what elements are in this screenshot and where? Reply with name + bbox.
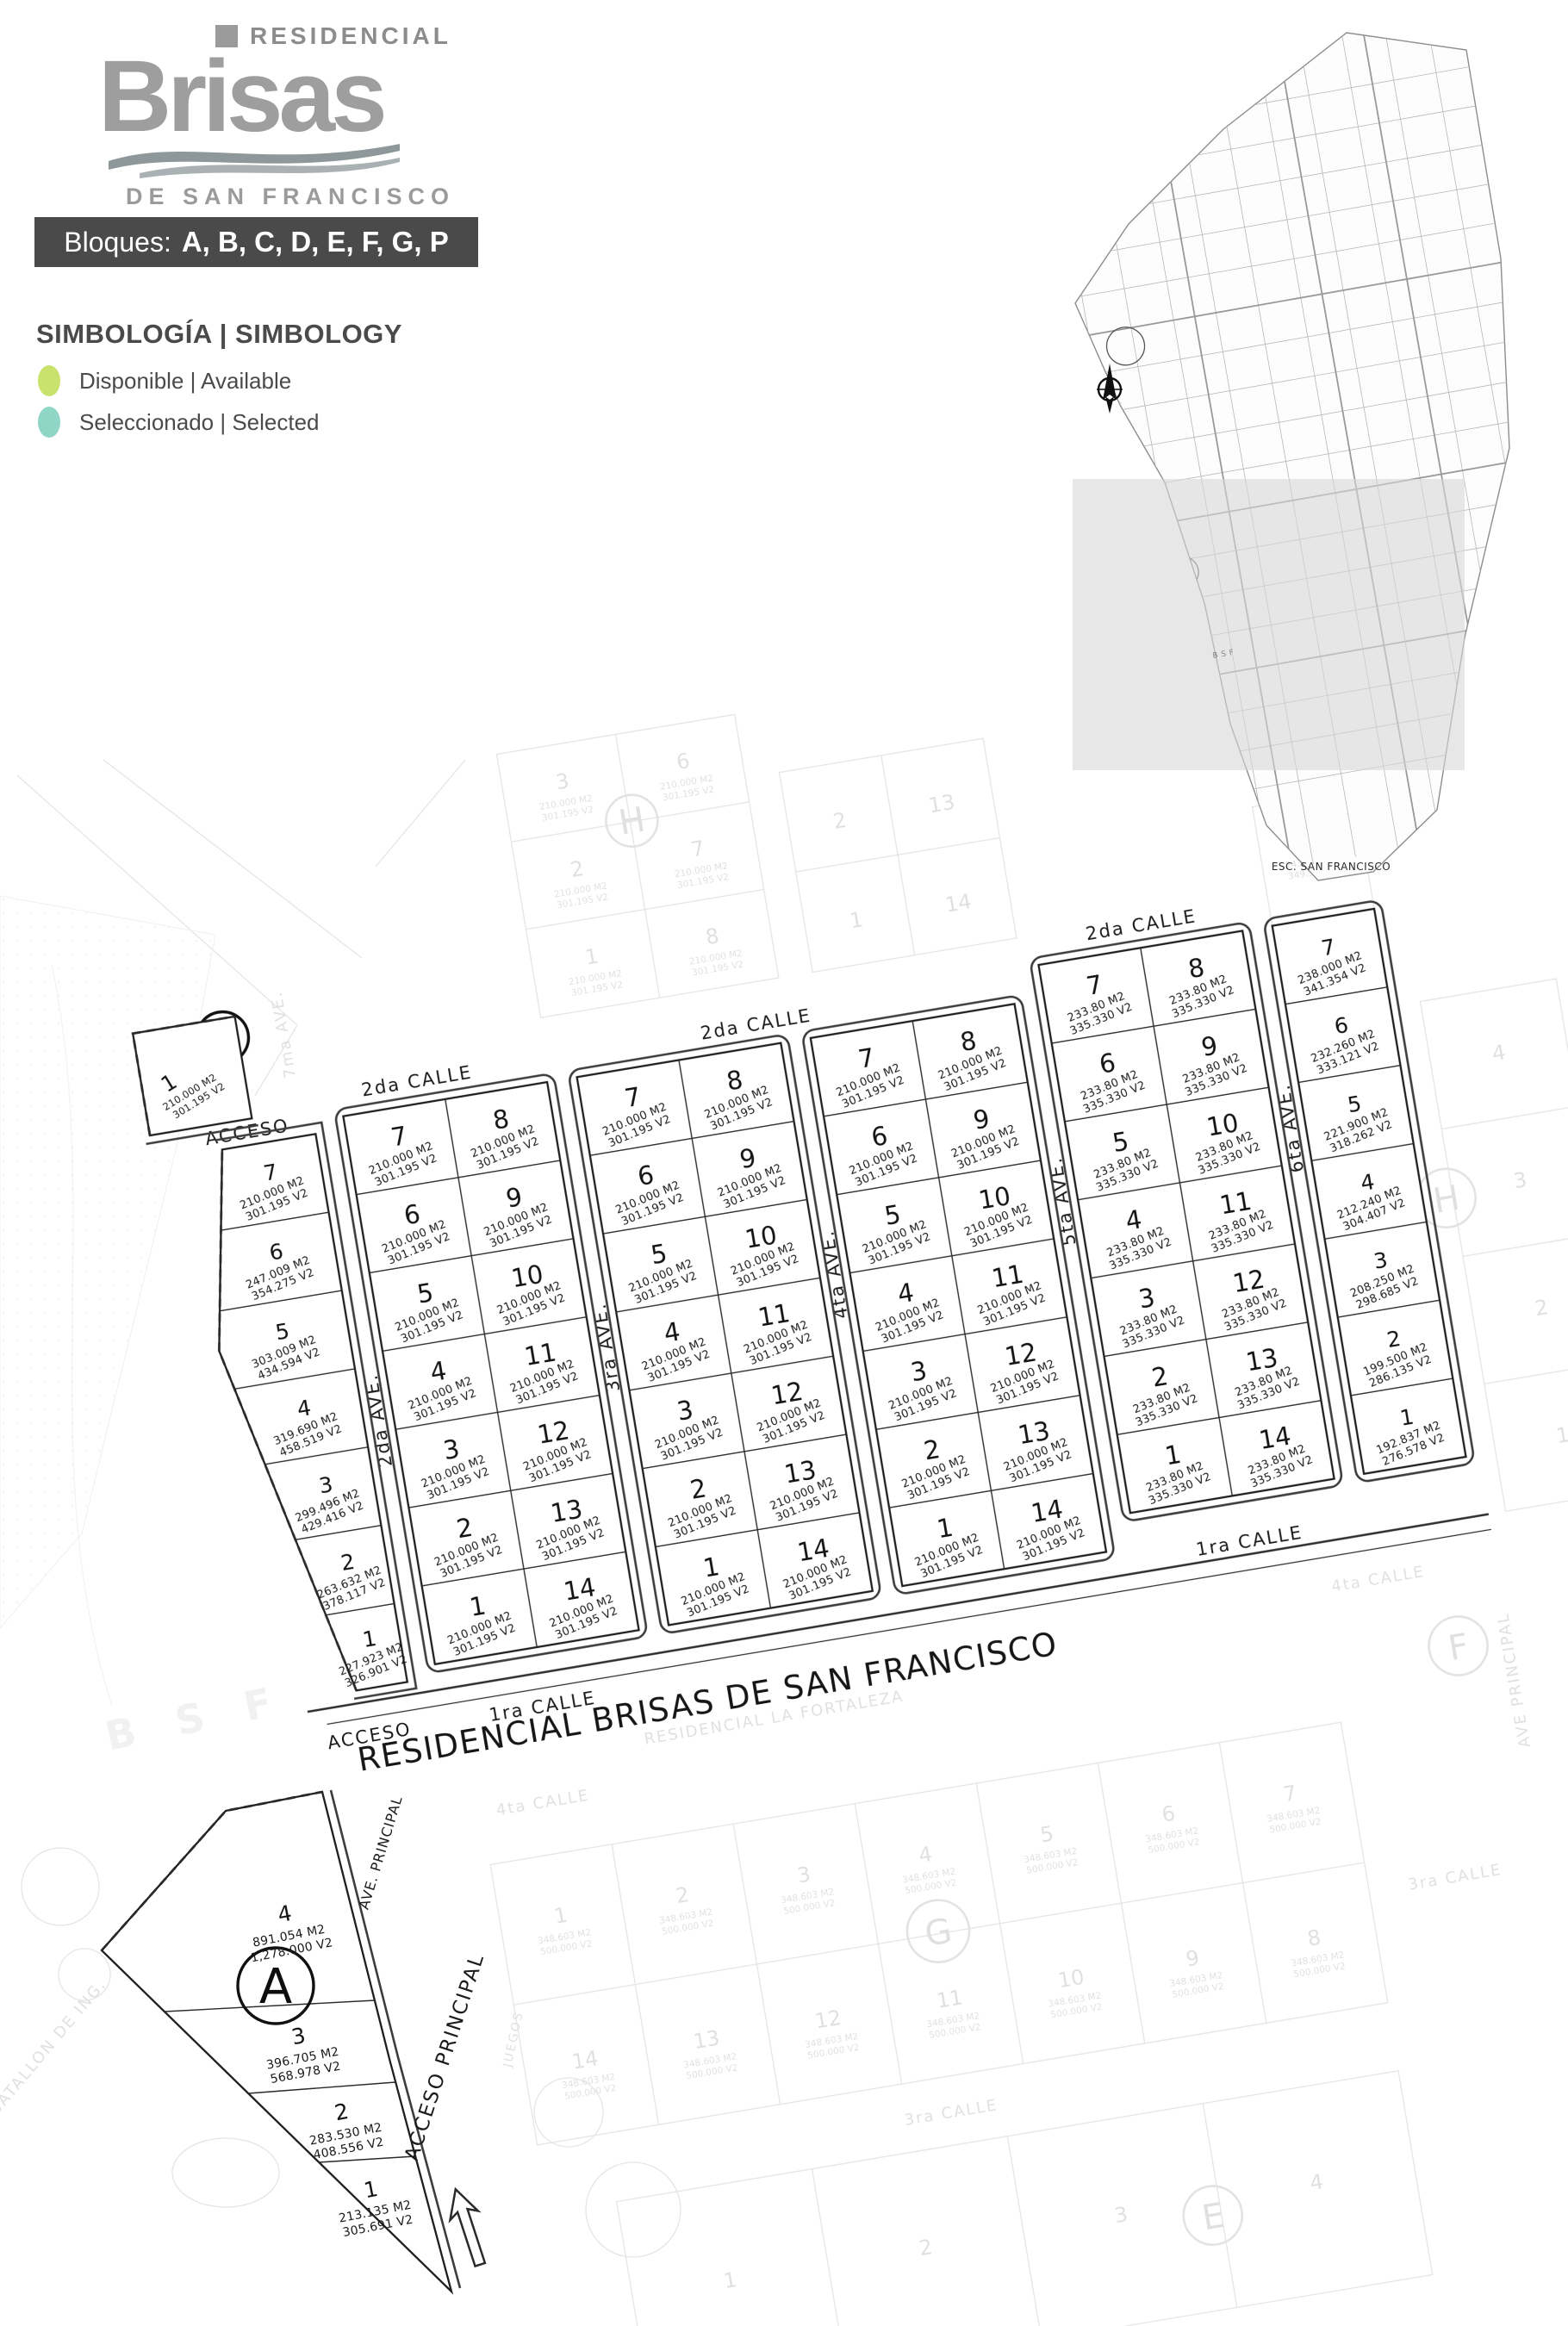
- legend-title: SIMBOLOGÍA | SIMBOLOGY: [36, 319, 402, 350]
- faded-label: 7: [1281, 1781, 1298, 1807]
- faded-label: 3: [554, 768, 571, 794]
- overview-highlight-region: [1073, 479, 1465, 770]
- banner-block-list: A, B, C, D, E, F, G, P: [182, 226, 449, 258]
- faded-label: 2: [674, 1882, 691, 1908]
- faded-label: 4ta CALLE: [1330, 1563, 1427, 1596]
- faded-label: 4ta CALLE: [495, 1786, 591, 1819]
- faded-label: 13: [927, 790, 957, 818]
- street-2da-calle-1: 2da CALLE: [360, 1061, 474, 1100]
- lot-g1[interactable]: [133, 1017, 252, 1135]
- logo-subtitle: DE SAN FRANCISCO: [126, 183, 498, 210]
- faded-label: 6: [1160, 1801, 1177, 1827]
- legend-item-label: Seleccionado | Selected: [79, 409, 320, 436]
- page: 3210.000 M2301.195 V22210.000 M2301.195 …: [0, 0, 1568, 2326]
- banner-prefix: Bloques:: [64, 227, 171, 258]
- faded-label: 4: [1308, 2169, 1325, 2195]
- selected-dot-icon: [36, 405, 62, 439]
- faded-label: 1: [848, 907, 865, 933]
- available-dot-icon: [36, 364, 62, 398]
- faded-label: 14: [570, 2046, 600, 2074]
- street-2da-calle-2: 2da CALLE: [699, 1005, 812, 1044]
- main-plan: ACCESO 2da CALLE 2da CALLE 2da CALLE 2da…: [127, 819, 1501, 1797]
- faded-label: 1: [1554, 1422, 1568, 1448]
- faded-label: 3: [795, 1862, 812, 1888]
- faded-block-letter: E: [1199, 2196, 1228, 2239]
- faded-label: 3: [1112, 2202, 1129, 2228]
- faded-label: 1: [552, 1903, 569, 1929]
- faded-label: 3ra CALLE: [1407, 1861, 1503, 1894]
- faded-label: 3ra CALLE: [903, 2096, 999, 2130]
- overview-caption: ESC. SAN FRANCISCO: [1272, 861, 1391, 873]
- faded-label: 2: [1533, 1295, 1550, 1321]
- faded-label: 2: [918, 2235, 935, 2261]
- faded-label: 7: [689, 836, 706, 861]
- faded-label: 3: [1512, 1167, 1529, 1193]
- faded-label: 6: [675, 749, 692, 774]
- legend-item-selected: Seleccionado | Selected: [36, 405, 402, 439]
- faded-label: 1: [583, 943, 600, 969]
- faded-label: 4: [917, 1842, 934, 1868]
- blocks-banner: Bloques: A, B, C, D, E, F, G, P: [34, 217, 478, 267]
- faded-block-letter: H: [616, 800, 648, 843]
- legend: SIMBOLOGÍA | SIMBOLOGY Disponible | Avai…: [36, 319, 402, 446]
- legend-item-label: Disponible | Available: [79, 368, 291, 395]
- faded-label: 8: [704, 924, 721, 949]
- faded-label: 5: [1038, 1821, 1055, 1847]
- logo-brand: Brisas: [98, 50, 498, 144]
- watermark-bsf: B S F: [102, 1676, 289, 1760]
- faded-label: 13: [692, 2025, 722, 2054]
- faded-label: 2: [831, 808, 849, 834]
- faded-block-letter: F: [1446, 1626, 1472, 1669]
- faded-label: 1: [722, 2267, 739, 2293]
- faded-block-letter: H: [1430, 1179, 1462, 1222]
- street-ave-principal: AVE. PRINCIPAL: [356, 1794, 406, 1912]
- street-2da-calle-3: 2da CALLE: [1084, 905, 1198, 944]
- block-a: A ACCESO AVE. PRINCIPAL ACCESO PRINCIPAL…: [102, 1719, 494, 2292]
- faded-label: 14: [943, 889, 974, 917]
- faded-label: 10: [1056, 1965, 1086, 1993]
- faded-label: 12: [813, 2006, 843, 2034]
- faded-label: AVE PRINCIPAL: [1494, 1611, 1534, 1749]
- direction-arrow-icon: [442, 2185, 495, 2269]
- faded-label: 2: [569, 856, 586, 882]
- street-acceso-principal: ACCESO PRINCIPAL: [401, 1950, 488, 2163]
- faded-label: 4: [1490, 1040, 1508, 1066]
- label-juegos: JUEGOS: [501, 2010, 526, 2069]
- street-batallon: BATALLON DE ING.: [0, 1975, 110, 2118]
- logo: RESIDENCIAL Brisas DE SAN FRANCISCO: [93, 22, 498, 210]
- legend-item-available: Disponible | Available: [36, 364, 402, 398]
- faded-label: 11: [935, 1985, 965, 2013]
- overview-map: B S F ESC. SAN FRANCISCO: [994, 13, 1568, 896]
- faded-label: 9: [1184, 1945, 1201, 1971]
- faded-block-letter: G: [922, 1911, 955, 1954]
- faded-label: 8: [1305, 1925, 1322, 1951]
